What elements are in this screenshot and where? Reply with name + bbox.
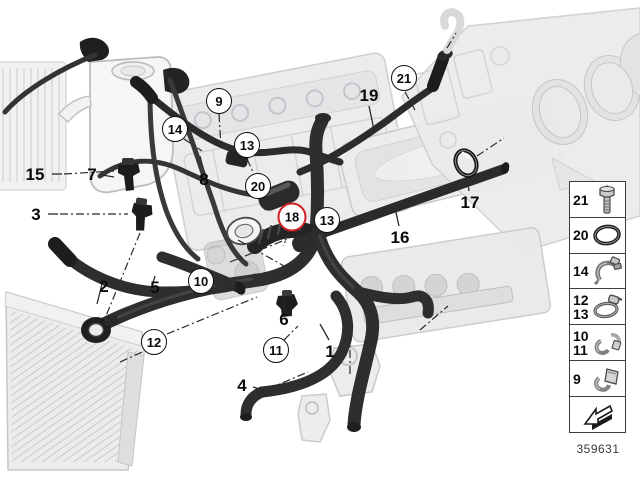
callout-15[interactable]: 15: [26, 165, 45, 185]
callout-10[interactable]: 10: [188, 268, 214, 294]
callout-21[interactable]: 21: [391, 65, 417, 91]
legend-item-label: 21: [573, 193, 589, 207]
legend-item-label: 20: [573, 228, 589, 242]
worm-clamp-icon: [591, 291, 623, 323]
callout-13[interactable]: 13: [314, 207, 340, 233]
callout-7[interactable]: 7: [87, 165, 96, 185]
direction-arrow-icon: [582, 398, 614, 430]
callout-20[interactable]: 20: [245, 173, 271, 199]
legend-item-21[interactable]: 21: [569, 181, 626, 218]
parts-diagram-canvas: 15372581916176149141320211318101112 2120…: [0, 0, 640, 480]
callout-12[interactable]: 12: [141, 329, 167, 355]
callout-11[interactable]: 11: [263, 337, 289, 363]
callout-1[interactable]: 1: [325, 342, 334, 362]
callout-8[interactable]: 8: [199, 170, 208, 190]
clip-pair-icon: [591, 327, 623, 359]
legend-item-label: 1011: [573, 329, 589, 357]
legend-item-10-11[interactable]: 1011: [569, 324, 626, 361]
hardware-legend: 212014121310119: [569, 181, 626, 433]
callout-16[interactable]: 16: [391, 228, 410, 248]
legend-item-14[interactable]: 14: [569, 253, 626, 290]
diagram-number: 359631: [566, 442, 630, 456]
legend-item-arrow[interactable]: [569, 396, 626, 433]
callout-6[interactable]: 6: [279, 310, 288, 330]
callout-19[interactable]: 19: [360, 86, 379, 106]
callout-3[interactable]: 3: [31, 205, 40, 225]
callout-14[interactable]: 14: [162, 116, 188, 142]
spring-clamp-icon: [591, 255, 623, 287]
callout-13[interactable]: 13: [234, 132, 260, 158]
legend-item-12-13[interactable]: 1213: [569, 288, 626, 325]
callout-9[interactable]: 9: [206, 88, 232, 114]
legend-item-label: 9: [573, 372, 581, 386]
bracket-clamp-icon: [591, 363, 623, 395]
o-ring-icon: [591, 219, 623, 251]
callout-layer: 15372581916176149141320211318101112: [0, 0, 640, 480]
legend-item-9[interactable]: 9: [569, 360, 626, 397]
callout-4[interactable]: 4: [237, 376, 246, 396]
callout-2[interactable]: 2: [99, 277, 108, 297]
callout-17[interactable]: 17: [461, 193, 480, 213]
callout-5[interactable]: 5: [150, 278, 159, 298]
bolt-icon: [591, 184, 623, 216]
legend-item-20[interactable]: 20: [569, 217, 626, 254]
legend-item-label: 14: [573, 264, 589, 278]
legend-item-label: 1213: [573, 293, 589, 321]
callout-18-highlighted[interactable]: 18: [278, 203, 307, 232]
